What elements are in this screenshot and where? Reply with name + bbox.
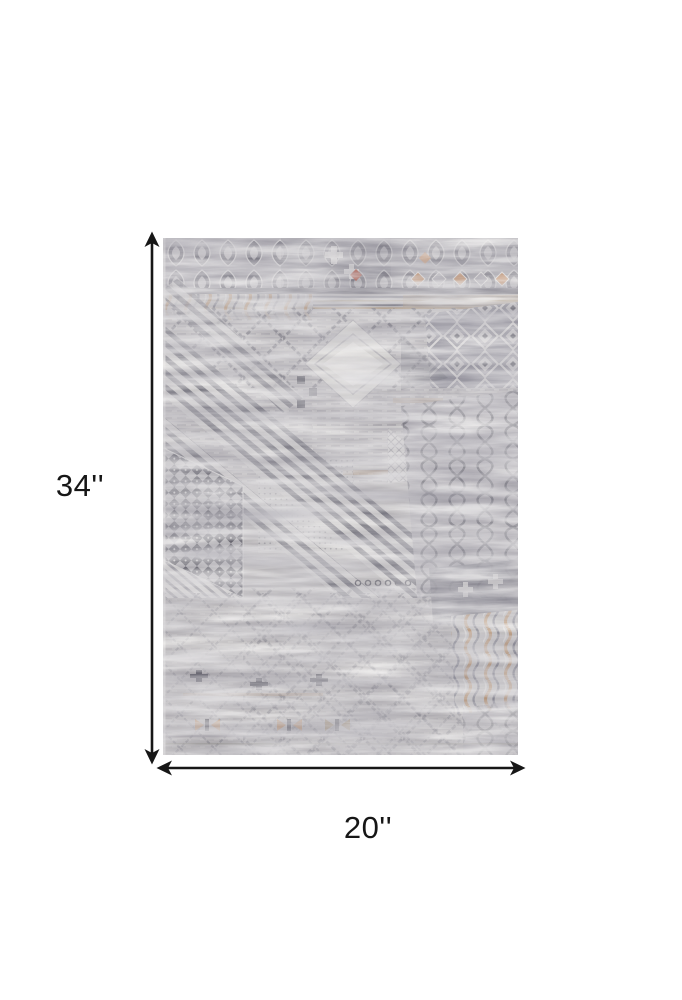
vertical-dimension-arrow	[141, 231, 163, 765]
rug-image	[163, 238, 518, 755]
horizontal-dimension-arrow	[156, 757, 526, 779]
product-dimension-figure: 34'' 20''	[0, 0, 682, 1000]
height-dimension-label: 34''	[45, 470, 115, 501]
width-dimension-label: 20''	[333, 812, 403, 843]
